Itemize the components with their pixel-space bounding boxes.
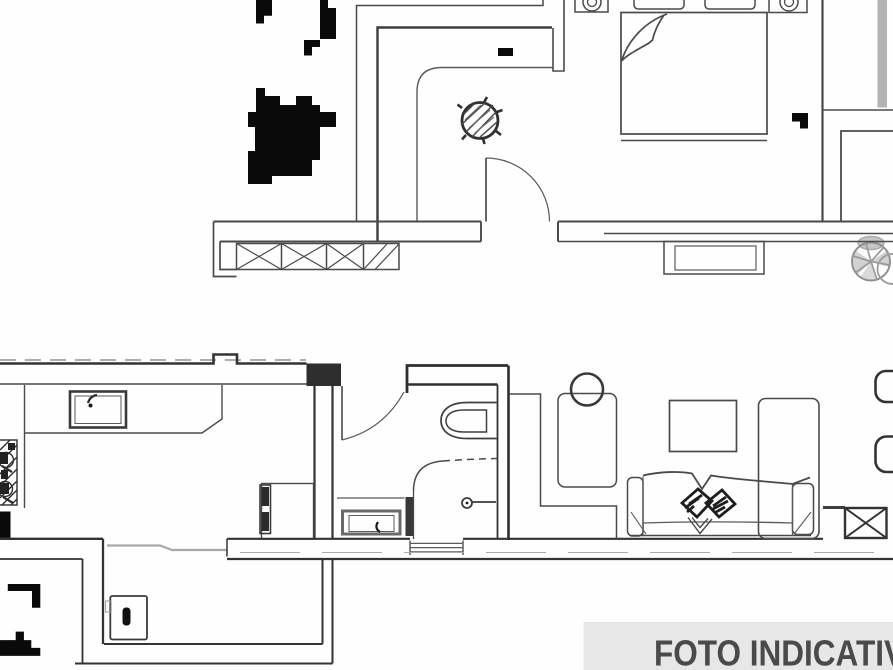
svg-text:FOTO INDICATIV: FOTO INDICATIV (654, 633, 893, 670)
